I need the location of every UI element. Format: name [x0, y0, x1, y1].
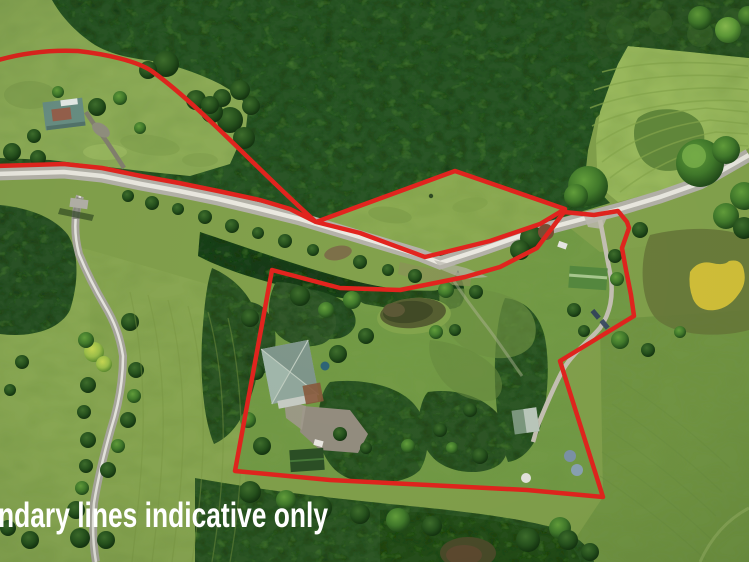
svg-text:ndary lines indicative only: ndary lines indicative only: [0, 496, 328, 535]
